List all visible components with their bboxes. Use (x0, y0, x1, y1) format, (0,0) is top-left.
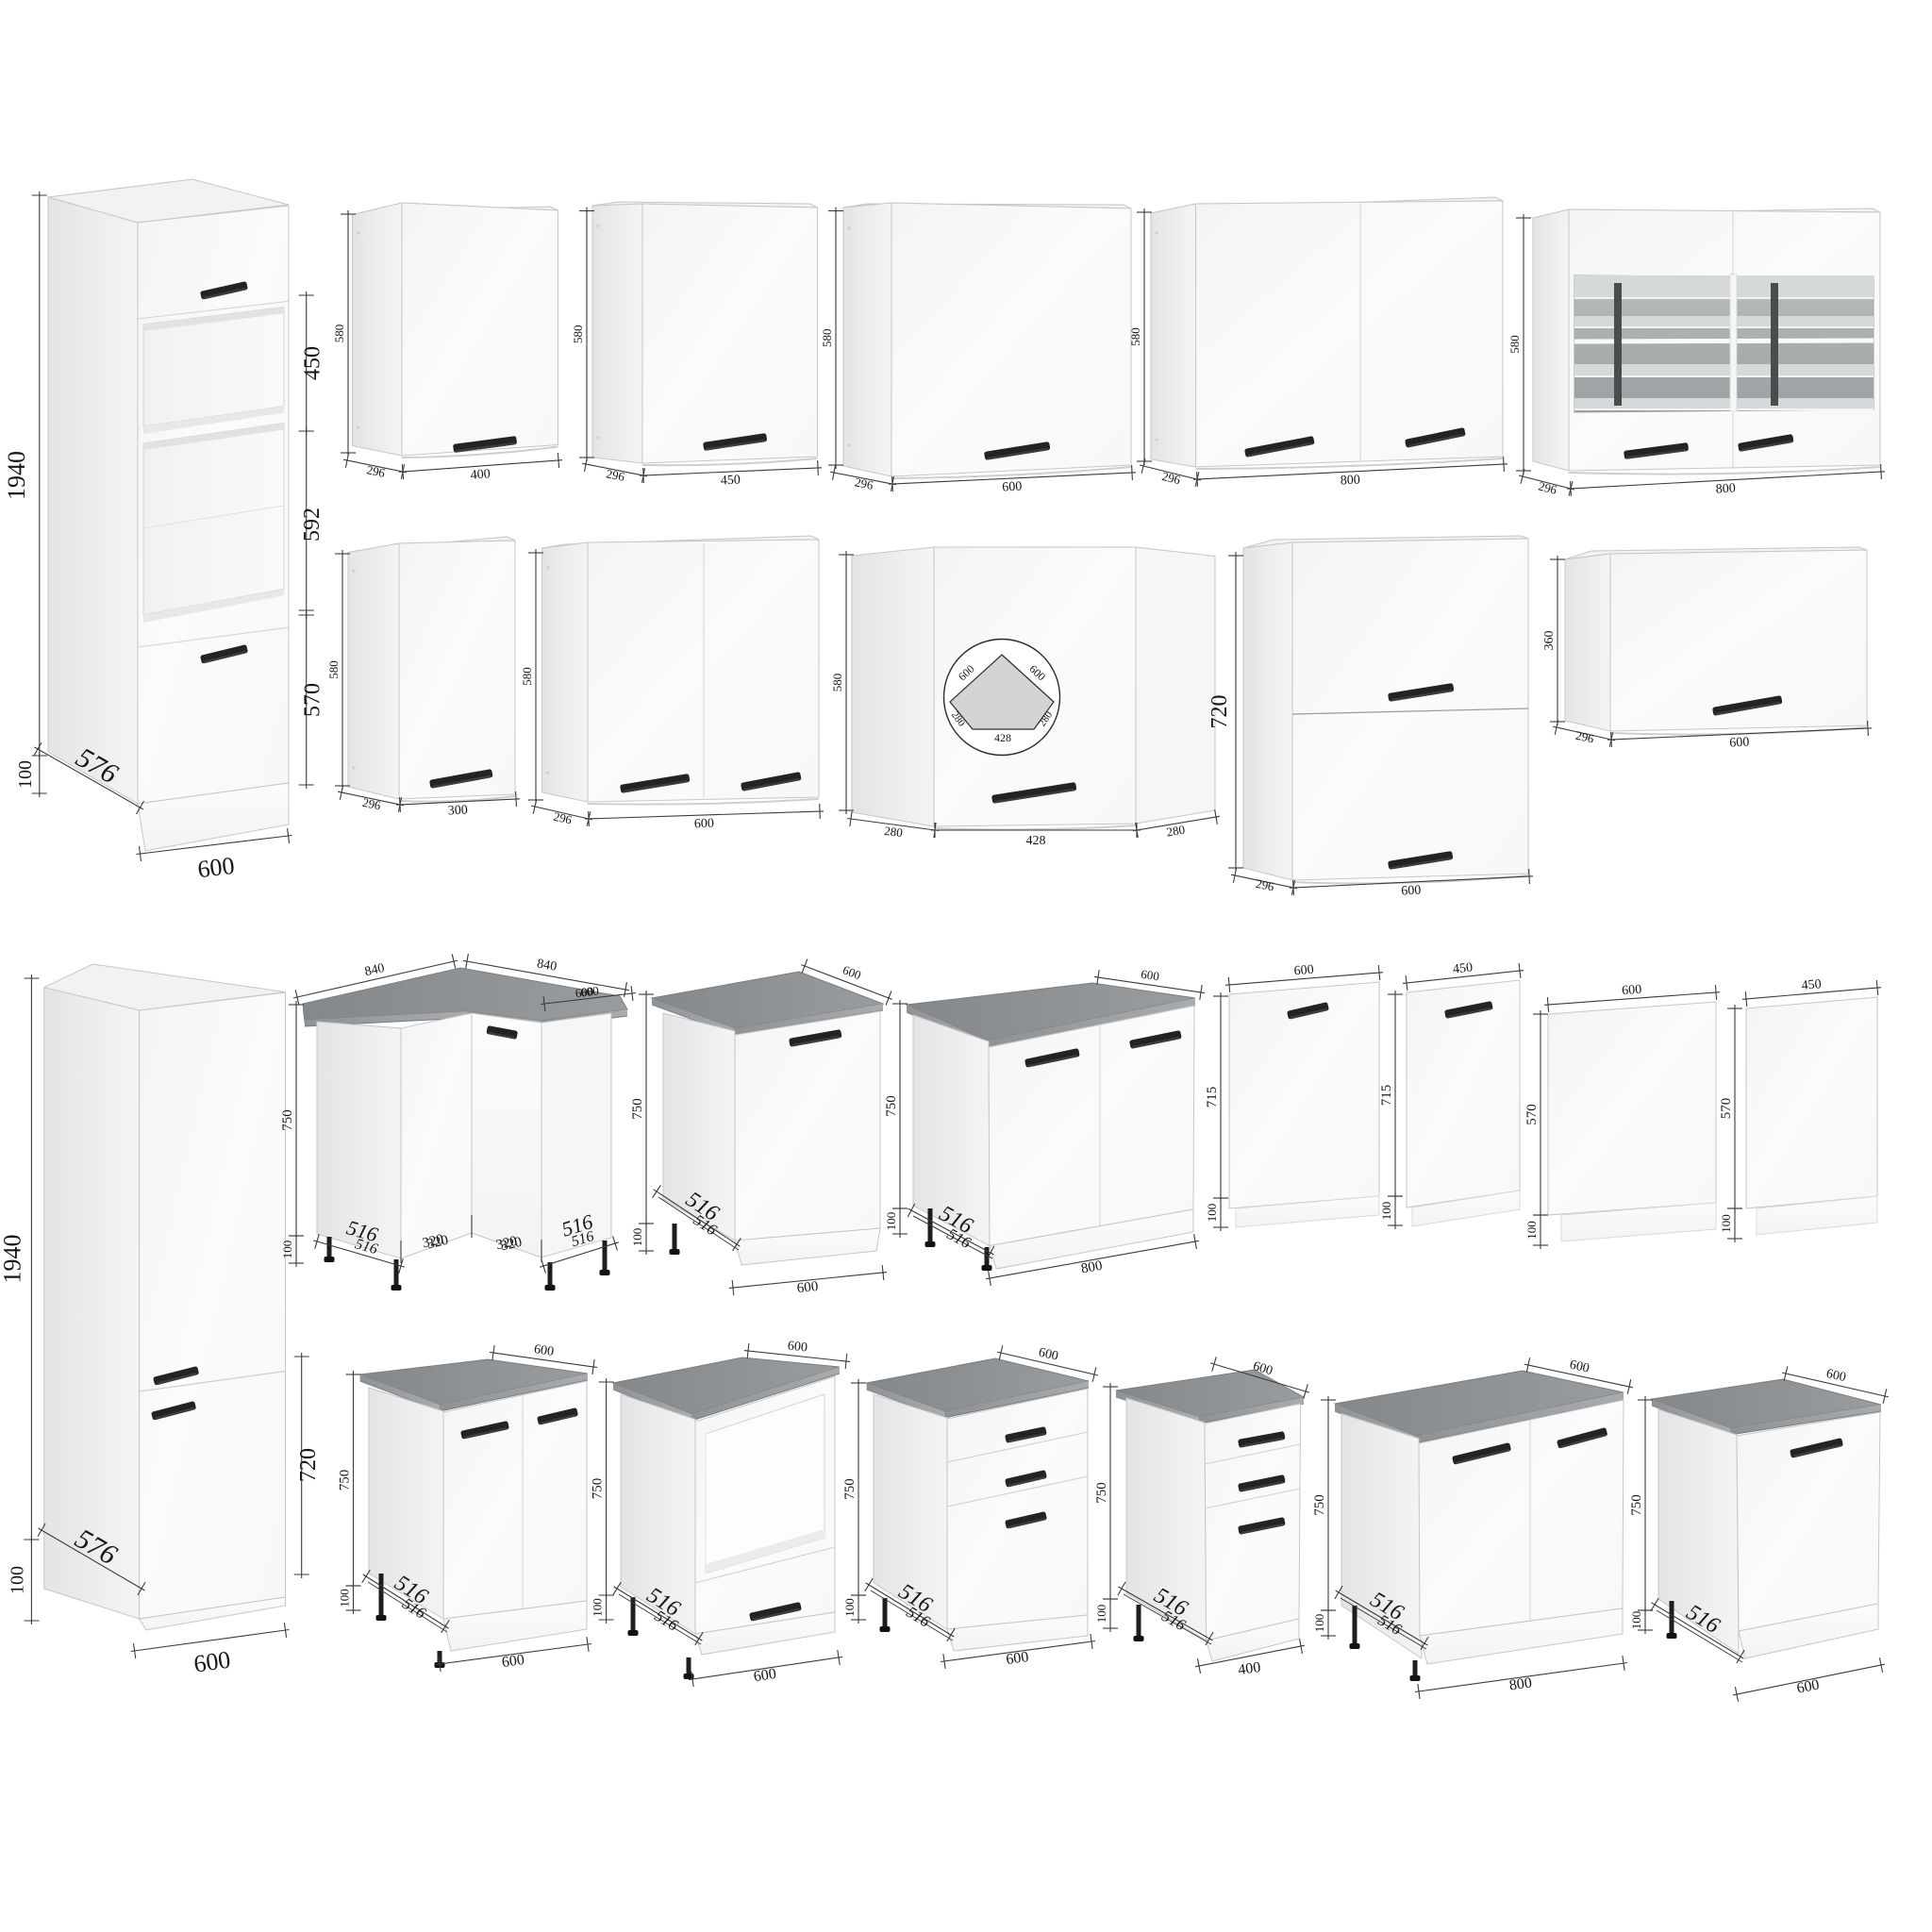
svg-text:100: 100 (1205, 1204, 1219, 1223)
svg-text:600: 600 (1729, 736, 1750, 751)
svg-text:300: 300 (447, 804, 468, 819)
svg-text:600: 600 (1401, 884, 1422, 899)
svg-text:750: 750 (1312, 1494, 1327, 1516)
svg-text:720: 720 (296, 1448, 321, 1482)
svg-text:580: 580 (1507, 335, 1522, 354)
svg-text:100: 100 (338, 1589, 352, 1607)
svg-text:360: 360 (1542, 631, 1557, 651)
svg-text:750: 750 (630, 1098, 645, 1120)
svg-text:600: 600 (192, 1646, 232, 1678)
svg-text:100: 100 (280, 1241, 294, 1259)
svg-text:750: 750 (884, 1095, 899, 1117)
svg-text:750: 750 (280, 1109, 295, 1131)
svg-text:450: 450 (721, 474, 741, 489)
svg-text:570: 570 (301, 683, 325, 717)
svg-text:600: 600 (1002, 480, 1023, 495)
svg-text:100: 100 (1312, 1614, 1326, 1633)
svg-text:280: 280 (883, 824, 903, 840)
svg-text:600: 600 (694, 817, 714, 832)
svg-text:280: 280 (1165, 823, 1186, 840)
svg-text:600: 600 (501, 1652, 525, 1671)
svg-text:600: 600 (1293, 963, 1314, 979)
svg-text:600: 600 (533, 1342, 555, 1359)
svg-text:720: 720 (1207, 695, 1232, 729)
svg-text:100: 100 (1094, 1605, 1108, 1624)
svg-text:592: 592 (300, 508, 325, 541)
svg-text:100: 100 (884, 1212, 898, 1231)
svg-text:428: 428 (1026, 834, 1046, 848)
svg-text:100: 100 (1629, 1611, 1643, 1630)
svg-text:750: 750 (1629, 1494, 1644, 1516)
svg-text:600: 600 (1622, 983, 1642, 998)
svg-text:750: 750 (842, 1478, 858, 1500)
svg-text:580: 580 (332, 325, 346, 343)
svg-text:1940: 1940 (3, 451, 30, 500)
svg-text:100: 100 (1719, 1214, 1733, 1233)
svg-text:600: 600 (796, 1279, 819, 1296)
svg-text:600: 600 (196, 852, 236, 884)
svg-text:400: 400 (470, 467, 491, 482)
svg-text:750: 750 (591, 1478, 606, 1500)
svg-text:750: 750 (338, 1470, 353, 1491)
svg-text:100: 100 (591, 1598, 605, 1617)
svg-text:400: 400 (1237, 1659, 1261, 1678)
svg-text:570: 570 (1524, 1104, 1540, 1125)
svg-text:580: 580 (830, 674, 844, 692)
svg-text:750: 750 (1094, 1482, 1109, 1504)
svg-text:715: 715 (1205, 1087, 1220, 1108)
svg-text:100: 100 (15, 760, 36, 789)
svg-text:428: 428 (994, 731, 1011, 744)
svg-text:800: 800 (1715, 481, 1736, 496)
svg-text:100: 100 (7, 1566, 27, 1594)
svg-text:600: 600 (1005, 1649, 1029, 1668)
svg-text:715: 715 (1379, 1085, 1394, 1107)
svg-text:580: 580 (1128, 327, 1142, 346)
svg-text:100: 100 (1379, 1202, 1393, 1221)
svg-text:600: 600 (575, 984, 594, 1000)
svg-text:100: 100 (630, 1228, 644, 1247)
svg-text:800: 800 (1340, 473, 1360, 488)
svg-text:450: 450 (1452, 960, 1473, 976)
svg-text:100: 100 (1524, 1221, 1539, 1240)
svg-text:580: 580 (820, 328, 834, 347)
svg-text:1940: 1940 (0, 1235, 25, 1284)
svg-text:450: 450 (301, 346, 325, 380)
svg-text:600: 600 (787, 1339, 808, 1355)
svg-text:450: 450 (1801, 977, 1822, 993)
svg-text:100: 100 (842, 1598, 857, 1617)
svg-text:570: 570 (1719, 1098, 1734, 1120)
svg-text:600: 600 (753, 1666, 777, 1685)
svg-text:600: 600 (1140, 967, 1159, 984)
svg-text:580: 580 (520, 667, 534, 686)
svg-text:580: 580 (326, 660, 341, 679)
svg-text:580: 580 (571, 325, 585, 343)
svg-text:800: 800 (1508, 1674, 1533, 1693)
